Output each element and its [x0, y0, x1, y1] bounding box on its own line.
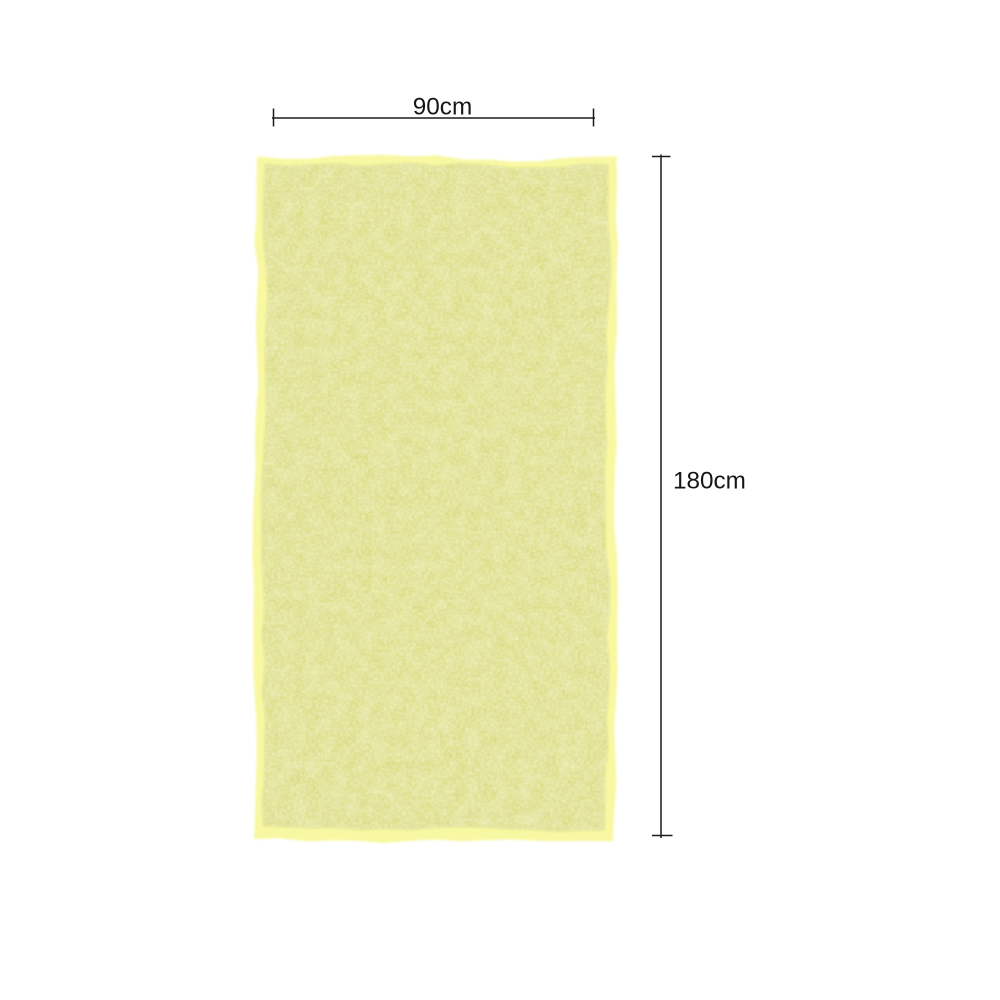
svg-text:180cm: 180cm — [673, 468, 746, 495]
svg-text:90cm: 90cm — [413, 94, 472, 121]
